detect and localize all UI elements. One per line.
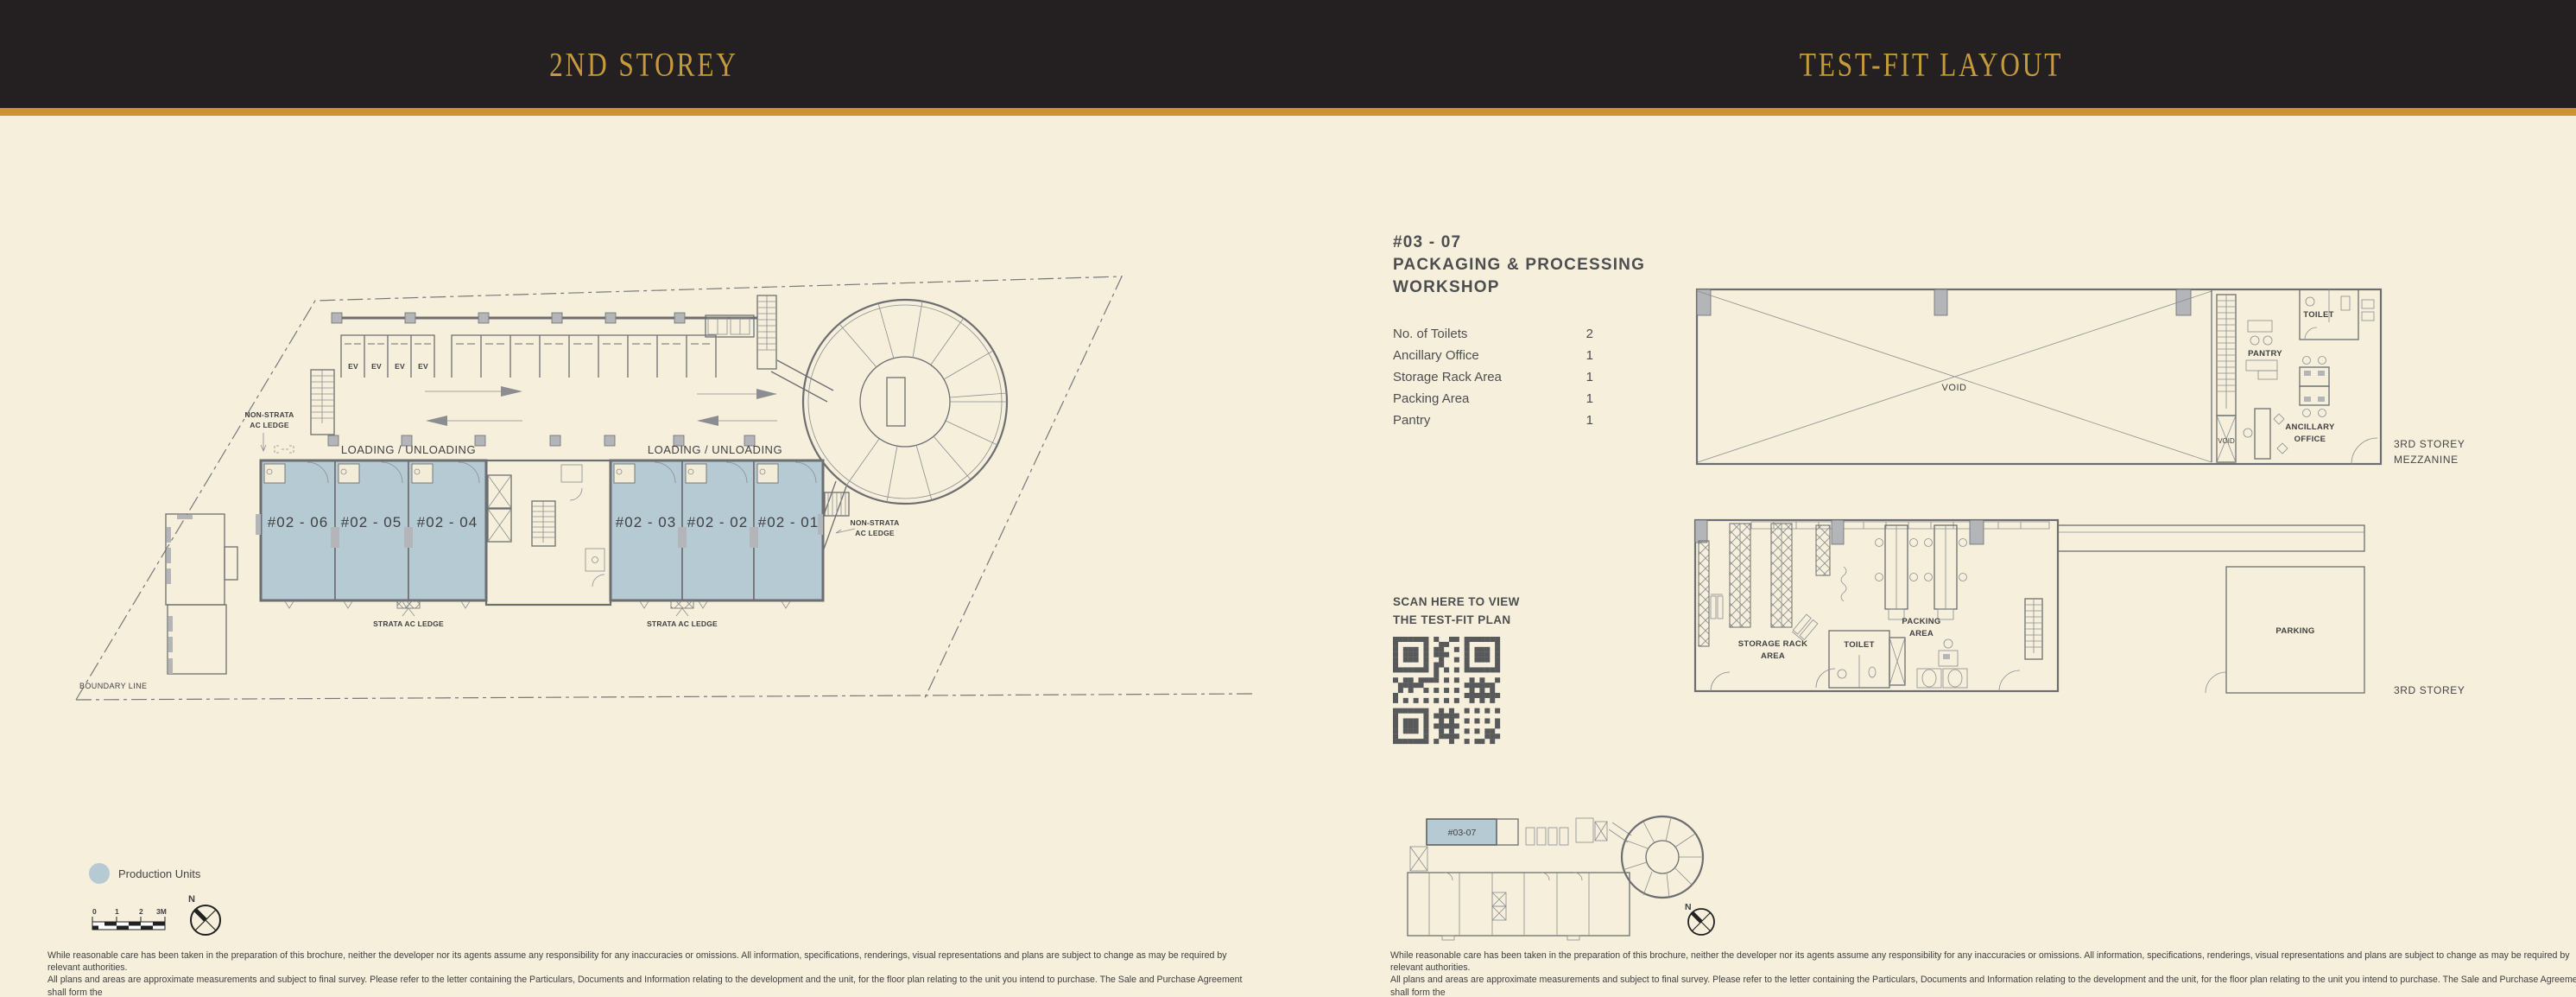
- unit-block-right: [611, 460, 823, 600]
- ancillary-office-label: OFFICE: [2294, 435, 2326, 444]
- facility-value: 1: [1586, 348, 1593, 363]
- test-fit-plan-3rd-storey: STORAGE RACK AREA TOILET PACKING AREA PA…: [1695, 517, 2383, 700]
- mezz-stair: [2217, 295, 2236, 416]
- unit-label: #02 - 06: [268, 514, 328, 530]
- key-lower-block: [1408, 873, 1630, 940]
- ev-label: EV: [418, 362, 428, 371]
- plan-side-label-3rd-storey: 3RD STOREY: [2394, 683, 2465, 698]
- toilet-label: TOILET: [2303, 310, 2333, 320]
- page-title-right: TEST-FIT LAYOUT: [1320, 48, 2542, 86]
- storage-rack-label: STORAGE RACK: [1738, 639, 1808, 649]
- facility-row: Packing Area 1: [1393, 391, 1593, 413]
- unit-label: #02 - 04: [417, 514, 478, 530]
- key-spiral: [1622, 816, 1703, 898]
- unit-title-line2: WORKSHOP: [1393, 276, 1500, 298]
- non-strata-label-right: NON-STRATA: [851, 518, 900, 527]
- boundary-line-label: BOUNDARY LINE: [79, 682, 147, 690]
- pantry-label: PANTRY: [2248, 349, 2282, 359]
- forklift: [1711, 594, 1818, 641]
- scale-bar: 0 1 2 3M: [89, 905, 175, 937]
- ancillary-office-label: ANCILLARY: [2285, 422, 2335, 432]
- compass-n-label: N: [1685, 902, 1692, 912]
- facility-value: 1: [1586, 391, 1593, 406]
- deck-corridor: [2058, 525, 2364, 551]
- test-fit-plan-mezzanine: VOID VOID PANTRY TOILET ANCILLARY OFFICE: [1695, 288, 2383, 467]
- packing-area-label: AREA: [1909, 629, 1934, 638]
- ev-label: EV: [371, 362, 382, 371]
- key-plan: #03-07 N: [1395, 808, 1740, 946]
- qr-caption-line2: THE TEST-FIT PLAN: [1393, 611, 1520, 629]
- key-stalls: [1526, 828, 1568, 845]
- packing-area-label: PACKING: [1902, 617, 1940, 626]
- scale-tick: 1: [115, 907, 119, 916]
- ramp-walkway: [771, 360, 833, 402]
- header-gold-band: [0, 108, 2576, 116]
- facility-label: Packing Area: [1393, 391, 1469, 406]
- unit-label: #02 - 02: [687, 514, 748, 530]
- parking-stalls: [452, 335, 716, 378]
- storage-racks: [1699, 524, 1830, 646]
- packing-benches: [1876, 525, 1967, 619]
- unit-title-line1: PACKAGING & PROCESSING: [1393, 254, 1645, 276]
- ev-label: EV: [348, 362, 358, 371]
- scale-tick: 0: [92, 907, 97, 916]
- plan-side-label-mezzanine: 3RD STOREY MEZZANINE: [2394, 436, 2465, 467]
- packing-station: [1917, 639, 1967, 688]
- compass-n-label: N: [188, 894, 195, 905]
- unit-number-title: #03 - 07: [1393, 232, 1461, 253]
- brochure-page: 2ND STOREY TEST-FIT LAYOUT EV EV EV EV: [0, 0, 2576, 997]
- strata-ledge-label-right: STRATA AC LEDGE: [647, 619, 718, 628]
- qr-caption: SCAN HERE TO VIEW THE TEST-FIT PLAN: [1393, 593, 1520, 629]
- disclaimer-right: While reasonable care has been taken in …: [1390, 949, 2576, 997]
- key-unit-label: #03-07: [1448, 828, 1477, 838]
- void-label: VOID: [1942, 383, 1967, 393]
- non-strata-label-left: AC LEDGE: [250, 421, 289, 429]
- loading-label-left: LOADING / UNLOADING: [341, 443, 476, 456]
- facility-row: No. of Toilets 2: [1393, 327, 1593, 348]
- disclaimer-line: All plans and areas are approximate meas…: [1390, 974, 2576, 997]
- qr-code: [1393, 637, 1500, 744]
- facility-row: Storage Rack Area 1: [1393, 370, 1593, 391]
- facility-value: 1: [1586, 370, 1593, 384]
- stair-west: [311, 370, 334, 435]
- disclaimer-left: While reasonable care has been taken in …: [47, 949, 1244, 997]
- unit-label: #02 - 03: [616, 514, 676, 530]
- qr-caption-line1: SCAN HERE TO VIEW: [1393, 593, 1520, 611]
- facility-row: Ancillary Office 1: [1393, 348, 1593, 370]
- facility-label: Ancillary Office: [1393, 348, 1479, 363]
- core-block: [486, 460, 611, 605]
- unit-label: #02 - 01: [758, 514, 819, 530]
- unit-label: #02 - 05: [341, 514, 402, 530]
- void-shaft-label: VOID: [2218, 437, 2235, 445]
- non-strata-label-right: AC LEDGE: [855, 529, 895, 537]
- void-area: [1698, 289, 2212, 462]
- non-strata-marker: [261, 433, 294, 453]
- storage-rack-label: AREA: [1761, 651, 1785, 661]
- north-compass: N: [185, 892, 228, 940]
- floor-plan-2nd-storey: EV EV EV EV: [52, 143, 1252, 834]
- facility-value: 2: [1586, 327, 1593, 341]
- legend-swatch-production-units: [89, 863, 110, 884]
- mezz-workstations: [2300, 357, 2329, 417]
- scale-tick: 3M: [156, 907, 167, 916]
- unit-block-left: [261, 460, 486, 600]
- facility-label: Pantry: [1393, 413, 1430, 428]
- traffic-arrows: [425, 386, 777, 426]
- strata-ledge-label-left: STRATA AC LEDGE: [373, 619, 444, 628]
- ev-parking-stalls: [341, 335, 434, 378]
- side-label-line: 3RD STOREY: [2394, 436, 2465, 452]
- cable-squiggle: [1841, 567, 1846, 601]
- facility-label: Storage Rack Area: [1393, 370, 1502, 384]
- facility-label: No. of Toilets: [1393, 327, 1467, 341]
- scale-tick: 2: [139, 907, 143, 916]
- strata-ledges: [397, 600, 693, 616]
- annex-building: [166, 514, 237, 674]
- key-compass: N: [1685, 902, 1714, 935]
- facility-row: Pantry 1: [1393, 413, 1593, 435]
- stair-tower: [757, 295, 776, 369]
- disclaimer-line: While reasonable care has been taken in …: [1390, 949, 2576, 974]
- parking-label: PARKING: [2275, 626, 2314, 636]
- ev-label: EV: [395, 362, 405, 371]
- legend-label: Production Units: [118, 867, 200, 880]
- page-title-left: 2ND STOREY: [32, 48, 1255, 86]
- storey-toilet-room: [1816, 631, 1905, 688]
- disclaimer-line: All plans and areas are approximate meas…: [47, 974, 1244, 997]
- entry-door-arc: [2351, 438, 2377, 464]
- toilet-label: TOILET: [1844, 640, 1874, 650]
- loading-label-right: LOADING / UNLOADING: [648, 443, 782, 456]
- side-label-line: MEZZANINE: [2394, 452, 2465, 467]
- disclaimer-line: While reasonable care has been taken in …: [47, 949, 1244, 974]
- ancillary-desk: [2244, 409, 2288, 459]
- non-strata-label-left: NON-STRATA: [245, 410, 294, 419]
- facility-value: 1: [1586, 413, 1593, 428]
